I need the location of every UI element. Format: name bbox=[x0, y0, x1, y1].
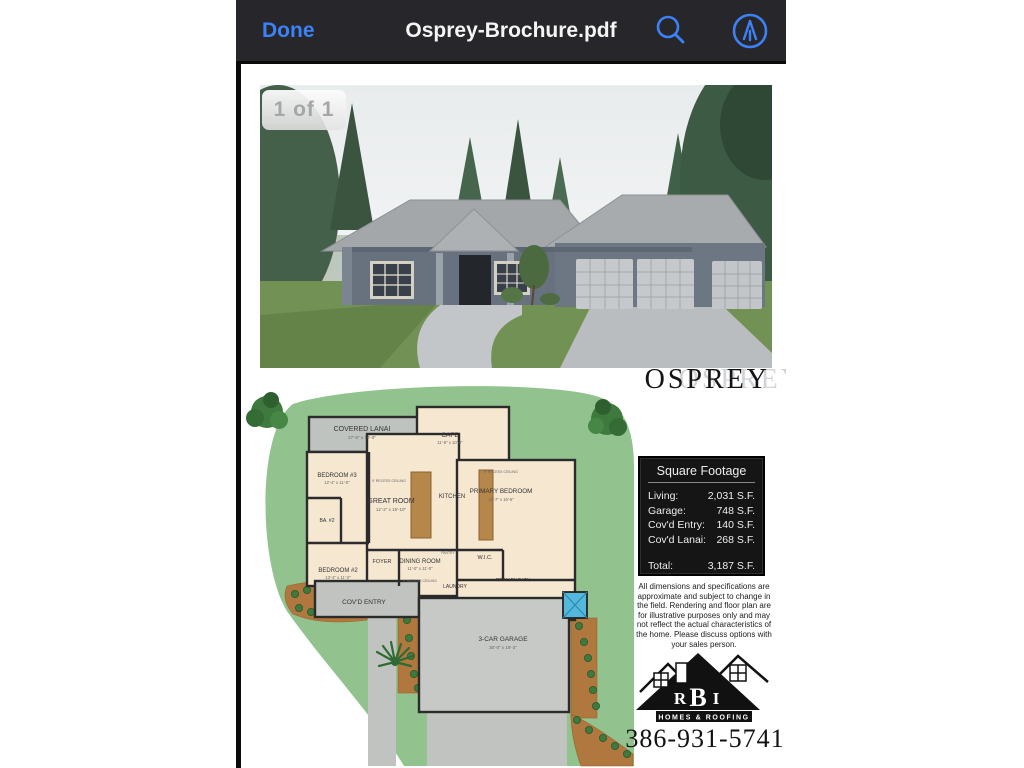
done-button[interactable]: Done bbox=[262, 19, 315, 43]
search-icon bbox=[651, 11, 691, 51]
markup-icon bbox=[730, 11, 770, 51]
sqft-label: Cov'd Lanai: bbox=[648, 533, 706, 548]
ceiling-note: 9' RECESS CEILING bbox=[484, 470, 518, 474]
sqft-row-living: Living: 2,031 S.F. bbox=[648, 489, 755, 504]
room-label-bath-2: BA. #2 bbox=[319, 518, 334, 524]
pdf-page[interactable]: 1 of 1 bbox=[236, 64, 786, 768]
room-label-great-room: GREAT ROOM bbox=[367, 498, 414, 505]
shower bbox=[563, 592, 587, 618]
room-dims-garage: 30'-0" x 19'-2" bbox=[489, 645, 517, 650]
room-label-bedroom-2: BEDROOM #2 bbox=[318, 568, 358, 574]
garage-doors bbox=[576, 259, 762, 309]
room-dims-great-room: 12'-2" x 15'-10" bbox=[376, 507, 407, 512]
logo-letter-b: B bbox=[689, 683, 706, 712]
sqft-label: Garage: bbox=[648, 504, 686, 519]
logo-letter-i: I bbox=[713, 689, 720, 708]
sqft-value: 748 S.F. bbox=[716, 504, 755, 519]
room-dims-bedroom-3: 12'-4" x 11'-0" bbox=[324, 480, 350, 485]
rbi-logo: R B I HOMES & ROOFING bbox=[630, 648, 780, 726]
room-label-covered-lanai: COVERED LANAI bbox=[334, 426, 391, 433]
room-dims-primary-bedroom: 14'-7" x 16'-5" bbox=[488, 497, 514, 502]
sqft-row-garage: Garage: 748 S.F. bbox=[648, 504, 755, 519]
navigation-bar: Done Osprey-Brochure.pdf bbox=[236, 0, 786, 64]
tree-icon bbox=[246, 392, 288, 429]
room-label-pantry: PANTRY bbox=[441, 551, 455, 555]
floor-plan-image: COVERED LANAI 27'-6" x 10'-0" CAFE 11'-8… bbox=[241, 374, 639, 768]
sqft-value: 268 S.F. bbox=[716, 533, 755, 548]
room-label-bedroom-3: BEDROOM #3 bbox=[317, 473, 357, 479]
room-dims-covered-lanai: 27'-6" x 10'-0" bbox=[348, 435, 376, 440]
sqft-row-total: Total: 3,187 S.F. bbox=[648, 559, 755, 574]
sqft-label: Cov'd Entry: bbox=[648, 518, 705, 533]
window-icon bbox=[730, 665, 746, 681]
front-tree bbox=[519, 245, 549, 289]
square-footage-title: Square Footage bbox=[648, 464, 755, 483]
room-label-primary-bath: PRIMARY BATH bbox=[496, 577, 530, 582]
sqft-value: 140 S.F. bbox=[716, 518, 755, 533]
sqft-label: Total: bbox=[648, 559, 673, 574]
room-dims-dining-room: 11'-0" x 11'-0" bbox=[407, 566, 433, 571]
kitchen-counter bbox=[479, 470, 493, 540]
disclaimer-text: All dimensions and specifications are ap… bbox=[633, 582, 775, 649]
house bbox=[322, 195, 766, 309]
room-label-foyer: FOYER bbox=[373, 559, 392, 565]
ceiling-note: 9' RECESS CEILING bbox=[403, 579, 437, 583]
pdf-viewer-window: Done Osprey-Brochure.pdf 1 of 1 bbox=[236, 0, 786, 768]
kitchen-island bbox=[411, 472, 431, 538]
front-bush bbox=[540, 293, 560, 305]
room-dims-cafe: 11'-8" x 10'-0" bbox=[437, 440, 463, 445]
window bbox=[370, 261, 414, 299]
room-dims-bedroom-2: 13'-4" x 11'-2" bbox=[325, 575, 351, 580]
markup-button[interactable] bbox=[730, 11, 770, 51]
ceiling-note: 9' RECESS CEILING bbox=[372, 479, 406, 483]
room-label-laundry: LAUNDRY bbox=[443, 584, 467, 590]
sqft-row-covd-lanai: Cov'd Lanai: 268 S.F. bbox=[648, 533, 755, 548]
sqft-value: 3,187 S.F. bbox=[708, 559, 755, 574]
walkway bbox=[368, 617, 396, 766]
room-label-covd-entry: COV'D ENTRY bbox=[342, 599, 386, 606]
sqft-label: Living: bbox=[648, 489, 678, 504]
sqft-row-covd-entry: Cov'd Entry: 140 S.F. bbox=[648, 518, 755, 533]
room-label-garage: 3-CAR GARAGE bbox=[478, 636, 528, 643]
front-bush bbox=[501, 287, 523, 303]
room-label-wic: W.I.C. bbox=[478, 555, 493, 561]
phone-number: 386-931-5741 bbox=[624, 724, 786, 754]
page-indicator: 1 of 1 bbox=[262, 90, 346, 130]
square-footage-panel: Square Footage Living: 2,031 S.F. Garage… bbox=[638, 456, 765, 576]
room-label-primary-bedroom: PRIMARY BEDROOM bbox=[470, 488, 533, 495]
logo-tagline: HOMES & ROOFING bbox=[658, 715, 749, 722]
room-label-dining-room: DINING ROOM bbox=[399, 559, 440, 565]
room-label-kitchen: KITCHEN bbox=[439, 494, 465, 500]
driveway-plan bbox=[427, 712, 567, 766]
window-icon bbox=[654, 673, 668, 687]
sqft-value: 2,031 S.F. bbox=[708, 489, 755, 504]
logo-letter-r: R bbox=[674, 689, 687, 708]
model-name: OSPREY bbox=[645, 364, 770, 396]
room-label-cafe: CAFE bbox=[441, 432, 459, 439]
document-title: Osprey-Brochure.pdf bbox=[405, 19, 616, 43]
search-button[interactable] bbox=[651, 11, 691, 51]
